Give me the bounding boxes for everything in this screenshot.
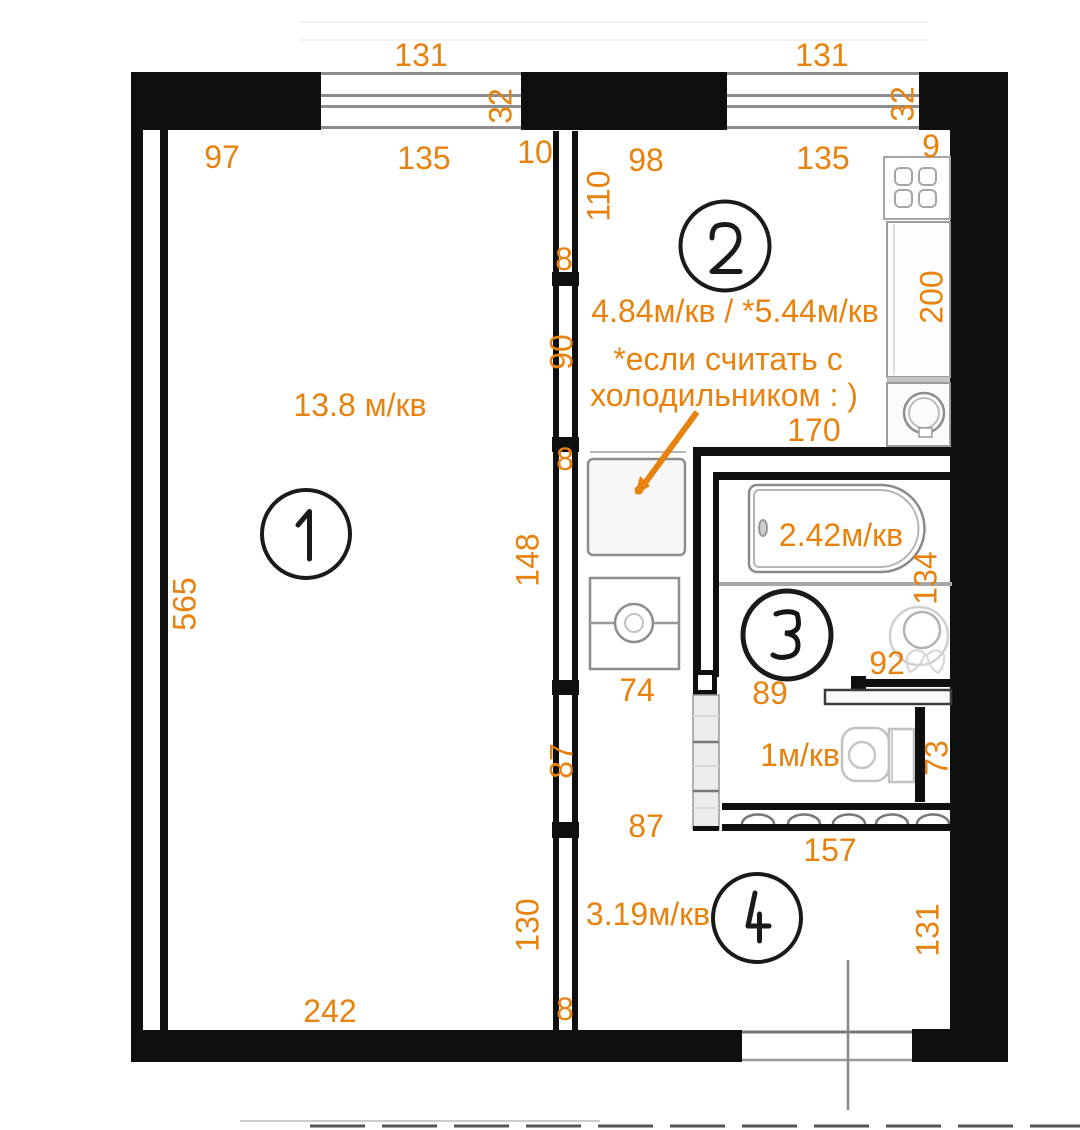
svg-text:110: 110 xyxy=(581,170,617,221)
svg-text:32: 32 xyxy=(885,86,921,122)
svg-text:13.8 м/кв: 13.8 м/кв xyxy=(293,387,426,423)
svg-text:134: 134 xyxy=(908,551,944,604)
svg-text:170: 170 xyxy=(787,412,840,448)
svg-text:3.19м/кв: 3.19м/кв xyxy=(586,896,710,932)
svg-text:157: 157 xyxy=(803,832,856,868)
svg-text:200: 200 xyxy=(914,270,950,323)
svg-text:131: 131 xyxy=(910,903,946,956)
svg-text:97: 97 xyxy=(204,139,240,175)
svg-text:135: 135 xyxy=(397,140,450,176)
svg-text:9: 9 xyxy=(922,128,940,164)
svg-text:130: 130 xyxy=(510,898,546,951)
svg-text:92: 92 xyxy=(869,645,905,681)
svg-text:2.42м/кв: 2.42м/кв xyxy=(779,517,903,553)
svg-text:565: 565 xyxy=(167,577,203,630)
svg-text:32: 32 xyxy=(483,88,519,124)
svg-text:131: 131 xyxy=(394,37,447,73)
svg-text:8: 8 xyxy=(556,991,574,1027)
svg-text:87: 87 xyxy=(544,743,580,779)
svg-text:131: 131 xyxy=(795,37,848,73)
svg-text:87: 87 xyxy=(628,808,664,844)
svg-text:*если считать с: *если считать с xyxy=(613,341,842,377)
svg-text:89: 89 xyxy=(752,675,788,711)
svg-text:148: 148 xyxy=(510,533,546,586)
svg-text:1м/кв: 1м/кв xyxy=(760,737,840,773)
svg-text:холодильником : ): холодильником : ) xyxy=(590,377,858,413)
svg-text:90: 90 xyxy=(544,334,580,370)
svg-text:98: 98 xyxy=(628,142,664,178)
svg-text:135: 135 xyxy=(796,140,849,176)
svg-text:4.84м/кв / *5.44м/кв: 4.84м/кв / *5.44м/кв xyxy=(591,293,878,329)
svg-text:10: 10 xyxy=(517,134,553,170)
svg-text:8: 8 xyxy=(555,241,573,277)
svg-text:73: 73 xyxy=(919,740,955,776)
svg-text:242: 242 xyxy=(303,993,356,1029)
svg-text:8: 8 xyxy=(556,441,574,477)
svg-text:74: 74 xyxy=(619,672,655,708)
